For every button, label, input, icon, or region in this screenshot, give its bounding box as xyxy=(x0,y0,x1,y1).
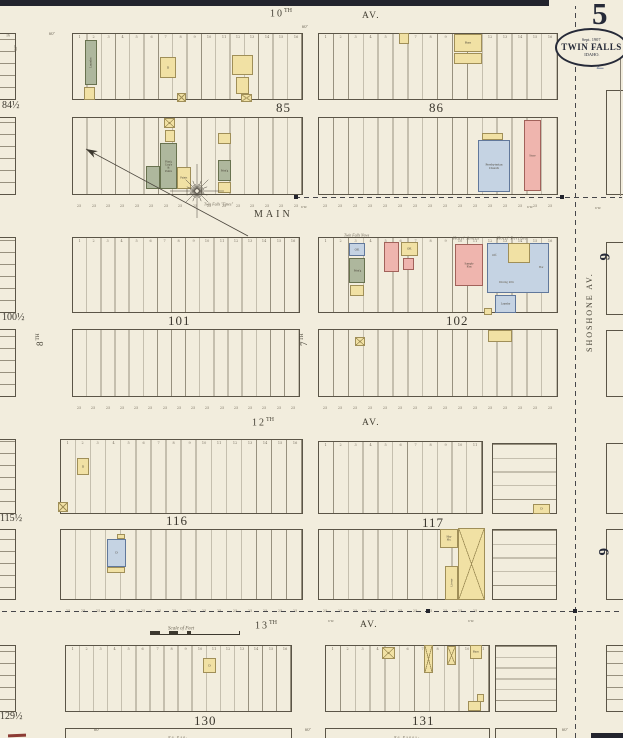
text: 10 xyxy=(202,441,206,445)
street-name-suffix: TH xyxy=(269,620,277,626)
text: 25 xyxy=(120,204,124,208)
text: 5 xyxy=(384,443,386,447)
street-name: 13TH xyxy=(255,620,277,631)
map-label: 60' xyxy=(94,721,104,738)
edge-block-number: 84½ xyxy=(2,100,20,111)
text: 5 xyxy=(135,239,137,243)
text: 25 xyxy=(473,406,477,410)
text: Paints xyxy=(181,176,188,179)
text: 6 xyxy=(142,441,144,445)
lot-number: 16 xyxy=(283,231,303,250)
edge-block xyxy=(0,439,16,514)
building xyxy=(458,528,485,600)
text: 12 xyxy=(488,35,492,39)
text: 25 xyxy=(383,406,387,410)
building: Paints xyxy=(177,167,191,189)
text: 1 xyxy=(324,443,326,447)
block-number: 86 xyxy=(429,100,444,116)
edge-block xyxy=(0,237,16,313)
street-name-text: 13 xyxy=(255,620,269,631)
text: Store xyxy=(529,154,535,157)
map-label: 6'W. xyxy=(328,613,342,631)
text: 25 xyxy=(398,406,402,410)
building: Laundry xyxy=(85,40,97,85)
lot-number: 25 xyxy=(541,196,561,215)
text: 25 xyxy=(338,204,342,208)
text: 25 xyxy=(533,406,537,410)
text: 8 xyxy=(429,35,431,39)
text: 60' xyxy=(49,31,54,36)
text: D xyxy=(539,507,545,511)
text: 25 xyxy=(458,406,462,410)
text: 25 xyxy=(323,406,327,410)
lot-number: 16 xyxy=(275,639,295,658)
street-name: AV. xyxy=(362,11,380,21)
text: 25 xyxy=(413,204,417,208)
text: 25 xyxy=(518,204,522,208)
edge-block xyxy=(606,443,623,514)
block-number: 130 xyxy=(194,713,217,729)
building xyxy=(241,94,252,102)
text: 8 xyxy=(173,441,175,445)
block-tier xyxy=(318,117,558,195)
text: 1 xyxy=(67,441,69,445)
text: 25 xyxy=(149,204,153,208)
edge-block-number: 129½ xyxy=(0,711,23,722)
text: 2 xyxy=(346,647,348,651)
building: Laundry xyxy=(495,295,516,313)
lot-number: 25 xyxy=(541,398,561,417)
street-name-text: AV. xyxy=(360,620,378,630)
street-name: MAIN xyxy=(254,209,293,220)
text: 15 xyxy=(276,239,280,243)
edge-block-number: 100½ xyxy=(2,312,25,323)
building xyxy=(403,258,414,270)
text: 25 xyxy=(262,406,266,410)
text: 25 xyxy=(368,204,372,208)
lot-number: 11 xyxy=(466,435,486,454)
street-name-text: AV. xyxy=(362,11,380,21)
text: 25 xyxy=(105,406,109,410)
text: 5 xyxy=(127,441,129,445)
edge-block xyxy=(0,329,16,397)
text: D xyxy=(207,664,211,668)
text: 6'W. xyxy=(301,205,307,209)
page-corner-border xyxy=(591,733,623,738)
lot-number: 16 xyxy=(285,433,305,452)
text: 1 xyxy=(331,647,333,651)
street-name-suffix: TH xyxy=(299,333,305,340)
text: 6 xyxy=(399,443,401,447)
block-number: 116 xyxy=(166,513,188,529)
text: D xyxy=(81,465,85,469)
text: 4 xyxy=(121,239,123,243)
street-name-text: 12 xyxy=(252,417,266,428)
text: 14 xyxy=(518,35,522,39)
text: 6'W. xyxy=(328,619,334,623)
street-name-text: 8 xyxy=(35,341,45,347)
text: 25 xyxy=(443,204,447,208)
text: 25 xyxy=(353,406,357,410)
text: 13 xyxy=(503,35,507,39)
text: 6 xyxy=(142,647,144,651)
text: 25 xyxy=(291,406,295,410)
text: 4 xyxy=(376,647,378,651)
text: 60' xyxy=(94,727,99,732)
text: 11 xyxy=(473,443,477,447)
building: D xyxy=(107,539,126,567)
block-subdivision xyxy=(492,529,557,600)
text: 25 xyxy=(413,406,417,410)
valve-dot xyxy=(294,195,298,199)
edge-block xyxy=(0,529,16,600)
text: 25 xyxy=(193,204,197,208)
building xyxy=(382,647,395,659)
building xyxy=(350,285,364,296)
text: 25 xyxy=(428,204,432,208)
text: 4 xyxy=(114,647,116,651)
building xyxy=(84,87,95,100)
text: 14 xyxy=(262,239,266,243)
text: 8 xyxy=(429,443,431,447)
building: Barn xyxy=(454,34,482,52)
text: 8 xyxy=(179,35,181,39)
text: 14 xyxy=(263,441,267,445)
text: 1 xyxy=(324,35,326,39)
text: 25 xyxy=(265,204,269,208)
block-tier xyxy=(60,529,303,600)
text: 8 xyxy=(170,647,172,651)
map-label: Dining R'm xyxy=(499,274,536,292)
street-name-text: 7 xyxy=(299,341,309,347)
text: Hotel Perrine xyxy=(497,236,527,241)
street-name: 10TH xyxy=(270,8,292,19)
building: Sample R'm xyxy=(455,244,483,286)
text: 10 xyxy=(205,239,209,243)
building xyxy=(146,166,160,189)
text: 9 xyxy=(444,35,446,39)
street-name-text: MAIN xyxy=(254,209,293,220)
text: 9 xyxy=(188,441,190,445)
text: 16 xyxy=(283,647,287,651)
text: 25 xyxy=(191,406,195,410)
text: D xyxy=(165,66,171,70)
street-name-text: 10 xyxy=(270,8,284,19)
map-label: 50' xyxy=(13,45,23,63)
text: 3 xyxy=(354,35,356,39)
text: D xyxy=(113,551,120,555)
street-name-suffix: TH xyxy=(266,417,274,423)
street-name-text: SHOSHONE AV. xyxy=(585,272,594,352)
text: 5 xyxy=(128,647,130,651)
text: 25 xyxy=(77,406,81,410)
building: Livery xyxy=(445,566,458,600)
valve-dot xyxy=(426,609,430,613)
text: 3 xyxy=(107,239,109,243)
building xyxy=(165,130,175,142)
water-main-line xyxy=(295,197,622,198)
text: 8 xyxy=(429,239,431,243)
text: Laundry xyxy=(501,302,510,305)
building xyxy=(484,308,492,315)
text: 10 xyxy=(198,647,202,651)
building: D xyxy=(533,504,550,514)
text: 6 xyxy=(149,239,151,243)
text: Barn xyxy=(473,650,479,653)
page-edge-mark xyxy=(8,734,26,738)
building xyxy=(399,33,409,44)
text: Off. xyxy=(407,247,413,250)
building: D xyxy=(160,57,176,78)
building xyxy=(477,694,484,702)
building: D xyxy=(203,658,216,673)
text: 25 xyxy=(428,406,432,410)
valve-dot xyxy=(573,609,577,613)
text: 3 xyxy=(354,443,356,447)
map-label: 6'W. xyxy=(595,200,609,218)
text: 25 xyxy=(148,406,152,410)
text: 2 xyxy=(85,647,87,651)
text: 8 xyxy=(178,239,180,243)
edge-block xyxy=(606,529,623,600)
map-label: 6'W. xyxy=(468,613,482,631)
text: 3 xyxy=(107,35,109,39)
text: 25 xyxy=(91,204,95,208)
text: 1 xyxy=(71,647,73,651)
stamp-state: IDAHO. xyxy=(584,53,599,57)
text: 60' xyxy=(562,727,567,732)
map-label: 60' xyxy=(302,18,312,36)
text: 16 xyxy=(294,35,298,39)
text: 7 xyxy=(158,441,160,445)
text: Livery xyxy=(450,579,453,587)
text: 25 xyxy=(294,204,298,208)
text: 25 xyxy=(135,204,139,208)
district-number: 6 xyxy=(595,253,612,261)
text: Sample R'm xyxy=(464,262,474,269)
edge-block xyxy=(606,330,623,397)
text: 3 xyxy=(361,647,363,651)
text: 25 xyxy=(353,204,357,208)
text: 5 xyxy=(384,35,386,39)
text: 15 xyxy=(278,441,282,445)
edge-block xyxy=(0,117,16,195)
text: 12 xyxy=(236,35,240,39)
text: Laundry xyxy=(89,57,93,68)
text: 16 xyxy=(291,239,295,243)
text: 7 xyxy=(165,35,167,39)
text: 2 xyxy=(92,239,94,243)
text: 7 xyxy=(414,35,416,39)
building xyxy=(218,133,231,144)
text: 25 xyxy=(219,406,223,410)
block-number: 131 xyxy=(412,713,435,729)
page-top-border xyxy=(0,0,549,6)
text: 25 xyxy=(368,406,372,410)
building: Presbyterian Church xyxy=(478,140,510,192)
map-label: 60' xyxy=(49,25,59,43)
text: 25 xyxy=(120,406,124,410)
map-label: Twin Falls News xyxy=(344,227,397,245)
building xyxy=(454,53,482,64)
street-name: SHOSHONE AV. xyxy=(585,272,594,352)
text: Plan'g Carp'y & Paints xyxy=(165,160,172,173)
building xyxy=(488,330,512,342)
text: 25 xyxy=(338,406,342,410)
scale-bar-label: Scale of Feet xyxy=(168,619,210,637)
text: 25 xyxy=(279,204,283,208)
text: 4 xyxy=(369,443,371,447)
text: 9 xyxy=(444,239,446,243)
text: 11 xyxy=(221,35,225,39)
building xyxy=(447,646,456,665)
text: 9 xyxy=(194,35,196,39)
block-number: 102 xyxy=(446,313,469,329)
text: 6'W. xyxy=(468,619,474,623)
text: 25 xyxy=(205,406,209,410)
text: 7 xyxy=(156,647,158,651)
text: 4 xyxy=(369,35,371,39)
text: Scale of Feet xyxy=(168,625,194,631)
map-label: 60' xyxy=(305,721,315,738)
text: 60' xyxy=(302,24,307,29)
text: Hay Ho. xyxy=(446,535,452,542)
text: 2 xyxy=(339,443,341,447)
text: 25 xyxy=(383,204,387,208)
street-name: 8TH xyxy=(35,333,45,346)
text: Barn xyxy=(463,41,473,45)
text: Hotel Annex xyxy=(453,236,480,241)
street-name-suffix: TH xyxy=(35,333,41,340)
text: 12 xyxy=(226,647,230,651)
lot-number: 25 xyxy=(283,398,303,417)
text: 25 xyxy=(164,204,168,208)
street-name: 7TH xyxy=(299,333,309,346)
text: 4 xyxy=(112,441,114,445)
building xyxy=(218,182,231,193)
publisher-stamp: Sept. 1907 TWIN FALLS IDAHO. xyxy=(555,28,623,67)
text: 25 xyxy=(488,406,492,410)
street-name: 12TH xyxy=(252,417,274,428)
text: 11 xyxy=(217,441,221,445)
text: 16 xyxy=(548,35,552,39)
text: 16 xyxy=(6,33,10,38)
text: 14 xyxy=(265,35,269,39)
building: Plan'g Carp'y & Paints xyxy=(160,143,177,189)
edge-block xyxy=(606,645,623,712)
text: 2 xyxy=(93,35,95,39)
text: 7 xyxy=(164,239,166,243)
text: 9 xyxy=(185,647,187,651)
sanborn-map-page: 1234567891011121314151625252525252525252… xyxy=(0,0,623,738)
building: Print'g xyxy=(218,160,231,181)
text: 3 xyxy=(99,647,101,651)
text: 25 xyxy=(398,204,402,208)
text: 13 xyxy=(250,35,254,39)
text: 7 xyxy=(414,443,416,447)
building: Barn xyxy=(470,645,482,659)
text: 3 xyxy=(97,441,99,445)
text: 25 xyxy=(234,406,238,410)
text: 9 xyxy=(192,239,194,243)
text: 15 xyxy=(533,35,537,39)
text: 25 xyxy=(548,406,552,410)
text: 25 xyxy=(518,406,522,410)
building xyxy=(232,55,253,75)
text: 4 xyxy=(121,35,123,39)
stamp-date: Sept. 1907 xyxy=(582,38,601,42)
text: Print'g xyxy=(221,169,228,172)
block-number: 101 xyxy=(168,313,191,329)
building: Hay Ho. xyxy=(440,529,458,548)
text: 6'W. xyxy=(595,206,601,210)
building xyxy=(177,93,186,102)
text: 8 xyxy=(436,647,438,651)
text: 25 xyxy=(503,406,507,410)
text: 13 xyxy=(240,647,244,651)
water-main-line xyxy=(575,6,576,738)
building xyxy=(107,567,125,573)
text: 25 xyxy=(443,406,447,410)
text: 12 xyxy=(234,239,238,243)
building xyxy=(58,502,68,512)
text: 10 xyxy=(207,35,211,39)
text: 25 xyxy=(162,406,166,410)
text: 25 xyxy=(106,204,110,208)
building xyxy=(164,118,175,128)
water-main-line xyxy=(2,611,622,612)
text: 25 xyxy=(248,406,252,410)
street-name: AV. xyxy=(362,418,380,428)
text: 25 xyxy=(178,204,182,208)
text: Twin Falls "Times" xyxy=(204,202,233,206)
edge-block xyxy=(0,645,16,712)
text: 25 xyxy=(503,204,507,208)
text: 6'W. xyxy=(527,205,533,209)
edge-block-number: 115½ xyxy=(0,513,22,524)
text: Dining R'm xyxy=(499,280,514,284)
text: 16 xyxy=(293,441,297,445)
block-subdivision xyxy=(495,645,557,712)
text: Off. xyxy=(492,253,497,257)
partial-block-strip: No Expos- xyxy=(325,728,490,738)
text: 50' xyxy=(13,46,18,51)
valve-dot xyxy=(560,195,564,199)
text: 2 xyxy=(82,441,84,445)
text: 6 xyxy=(150,35,152,39)
text: 12 xyxy=(232,441,236,445)
block-tier xyxy=(318,329,558,397)
text: 15 xyxy=(279,35,283,39)
text: 2 xyxy=(339,35,341,39)
building: D xyxy=(77,458,89,475)
text: 13 xyxy=(248,441,252,445)
district-number: 6 xyxy=(594,548,611,556)
text: 60' xyxy=(305,727,310,732)
building xyxy=(384,242,399,272)
text: 9 xyxy=(444,443,446,447)
text: 15 xyxy=(269,647,273,651)
street-name: AV. xyxy=(360,620,378,630)
text: Off. xyxy=(354,248,359,251)
text: 25 xyxy=(177,406,181,410)
street-name-text: AV. xyxy=(362,418,380,428)
building xyxy=(468,701,481,711)
building xyxy=(355,337,365,346)
text: 14 xyxy=(254,647,258,651)
map-canvas: 1234567891011121314151625252525252525252… xyxy=(0,0,623,738)
text: 25 xyxy=(548,204,552,208)
